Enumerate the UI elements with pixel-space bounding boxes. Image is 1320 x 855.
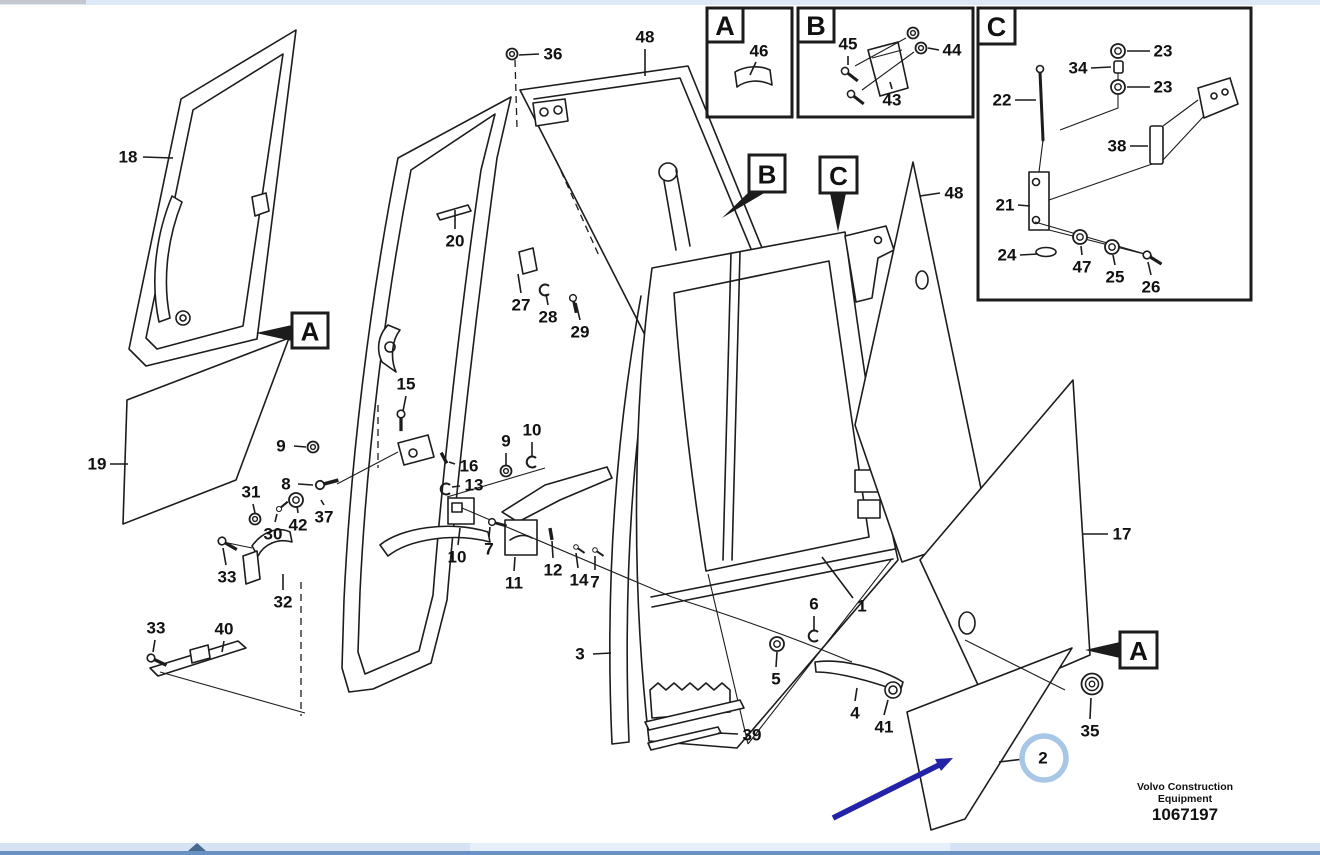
scrollbar-track-highlight [470, 843, 950, 851]
detail-view-letter: A [715, 11, 735, 41]
part-label: 44 [943, 41, 962, 60]
leader-line [275, 514, 277, 522]
part-label: 10 [448, 548, 467, 567]
part-label: 34 [1069, 59, 1088, 78]
part-label: 31 [242, 483, 261, 502]
callout-marker-A: A [1085, 632, 1157, 668]
leader-line [1090, 698, 1091, 719]
leader-line [452, 486, 460, 487]
part-label: 5 [771, 670, 780, 689]
exploded-parts-diagram: 1819364820272829159831304237333233401613… [0, 0, 1320, 843]
diagram-line-art [123, 30, 1238, 830]
nut-icon [308, 442, 319, 453]
part-label: 33 [218, 568, 237, 587]
svg-text:A: A [1129, 636, 1148, 666]
part-label: 21 [996, 196, 1015, 215]
part-label: 3 [575, 645, 584, 664]
nut-icon [916, 43, 927, 54]
part-label: 46 [750, 42, 769, 61]
part-label: 14 [570, 571, 589, 590]
part-label: 36 [544, 45, 563, 64]
nut-icon [250, 514, 261, 525]
parts-diagram-page: 1819364820272829159831304237333233401613… [0, 0, 1320, 855]
leader-line [884, 700, 888, 715]
document-footer: Volvo Construction Equipment 1067197 [1137, 781, 1233, 824]
leader-line [576, 553, 578, 568]
leader-line [223, 548, 226, 565]
washer-icon [1111, 80, 1125, 94]
bolt-icon [846, 89, 866, 107]
leader-line [519, 54, 539, 55]
part-label: 2 [1038, 749, 1047, 768]
part-label: 16 [460, 457, 479, 476]
part-label: 8 [281, 475, 290, 494]
leader-line [776, 652, 777, 667]
part-label: 47 [1073, 258, 1092, 277]
leader-line [514, 557, 515, 571]
detail-view-A: A [707, 8, 792, 117]
leader-line [143, 157, 173, 158]
part-label: 7 [484, 540, 493, 559]
part-label: 17 [1113, 525, 1132, 544]
part-label: 24 [998, 246, 1017, 265]
scrollbar-bottom-edge [0, 851, 1320, 855]
part-label: 1 [857, 597, 866, 616]
bolt-icon [592, 547, 605, 558]
brand-line1: Volvo Construction [1137, 781, 1233, 793]
leader-line [1020, 254, 1038, 255]
leader-line [928, 48, 939, 50]
part-label: 33 [147, 619, 166, 638]
part-label: 37 [315, 508, 334, 527]
washer-icon [1073, 230, 1087, 244]
part-label: 27 [512, 296, 531, 315]
leader-line [593, 653, 611, 654]
part-label: 26 [1142, 278, 1161, 297]
leader-line [1091, 67, 1111, 68]
svg-text:C: C [829, 161, 848, 191]
bolt-icon [573, 544, 586, 555]
leader-line [1148, 262, 1151, 275]
bolt-icon [840, 66, 860, 84]
leader-line [489, 527, 490, 537]
part-label: 38 [1108, 137, 1127, 156]
part-label: 19 [88, 455, 107, 474]
brand-line2: Equipment [1158, 793, 1213, 805]
part-label: 29 [571, 323, 590, 342]
part-label: 20 [446, 232, 465, 251]
svg-text:B: B [758, 160, 777, 190]
part-label: 11 [505, 574, 523, 593]
part-label: 41 [875, 718, 894, 737]
part-label: 4 [850, 704, 860, 723]
part-label: 40 [215, 620, 234, 639]
part-label: 9 [276, 437, 285, 456]
part-label: 32 [274, 593, 293, 612]
part-label: 28 [539, 308, 558, 327]
nut-icon [507, 49, 518, 60]
bolt-icon [315, 476, 340, 490]
leader-line [718, 733, 738, 734]
clip-icon [540, 285, 549, 296]
part-label: 9 [501, 432, 510, 451]
part-label: 12 [544, 561, 563, 580]
part-label: 35 [1081, 722, 1100, 741]
leader-line [294, 446, 306, 447]
nut-icon [501, 466, 512, 477]
part-label: 25 [1106, 268, 1125, 287]
leader-line [920, 193, 940, 196]
pin-icon [550, 528, 552, 540]
leader-line [1018, 205, 1030, 206]
scrollbar-thumb[interactable] [188, 843, 206, 851]
leader-line [518, 274, 521, 293]
leader-line [297, 506, 298, 513]
part-label: 10 [523, 421, 542, 440]
leader-line [855, 688, 857, 701]
nut-icon [908, 28, 919, 39]
part-label: 43 [883, 91, 902, 110]
bolt-icon [1142, 250, 1164, 267]
part-label: 45 [839, 35, 858, 54]
svg-text:A: A [301, 317, 320, 347]
washer-icon [289, 493, 303, 507]
leader-line [552, 541, 553, 558]
clip-icon [527, 457, 536, 468]
washer-icon [1111, 44, 1125, 58]
part-label: 48 [636, 28, 655, 47]
part-label: 6 [809, 595, 818, 614]
part-label: 18 [119, 148, 138, 167]
leader-line [1081, 246, 1082, 255]
part-label: 48 [945, 184, 964, 203]
part-label: 42 [289, 516, 308, 535]
washer-icon [1105, 240, 1119, 254]
bolt-icon [275, 500, 289, 513]
detail-view-letter: B [806, 11, 826, 41]
part-label: 7 [590, 573, 599, 592]
grommet-icon [1082, 674, 1103, 695]
callout-marker-A: A [256, 313, 328, 348]
part-label: 13 [465, 476, 484, 495]
callout-marker-C: C [820, 157, 857, 232]
part-label: 23 [1154, 78, 1173, 97]
part-label: 39 [743, 726, 762, 745]
leader-line [321, 500, 324, 505]
leader-line [1113, 255, 1115, 265]
part-label: 15 [397, 375, 416, 394]
leader-line [298, 484, 313, 485]
document-number: 1067197 [1152, 805, 1218, 824]
leader-line [153, 640, 155, 652]
part-label: 23 [1154, 42, 1173, 61]
detail-view-letter: C [987, 12, 1007, 42]
leader-line [253, 504, 255, 513]
washer-icon [770, 637, 784, 651]
part-label: 30 [264, 525, 283, 544]
part-label: 22 [993, 91, 1012, 110]
